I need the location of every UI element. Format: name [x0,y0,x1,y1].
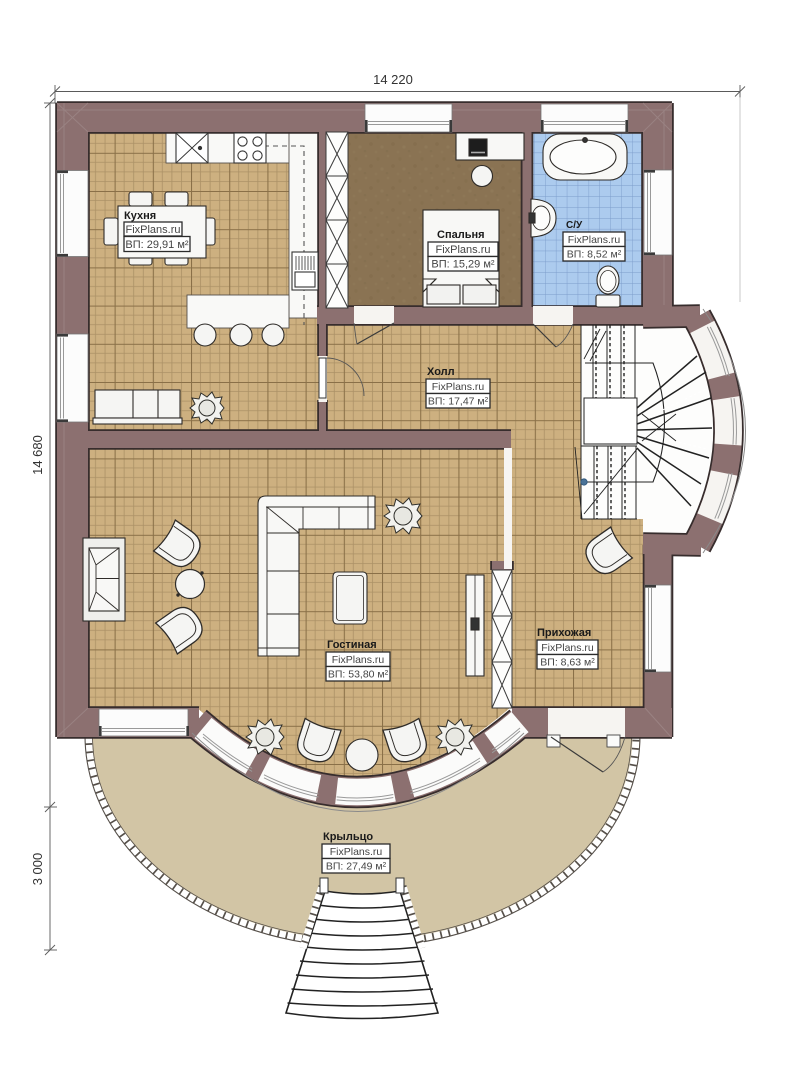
svg-text:Крыльцо: Крыльцо [323,831,373,843]
svg-text:ВП: 8,52 м²: ВП: 8,52 м² [567,249,622,261]
svg-text:Холл: Холл [427,366,455,378]
svg-text:FixPlans.ru: FixPlans.ru [330,846,383,858]
svg-text:ВП: 8,63 м²: ВП: 8,63 м² [540,657,595,669]
svg-text:FixPlans.ru: FixPlans.ru [568,234,621,246]
svg-text:Прихожая: Прихожая [537,627,591,639]
svg-text:FixPlans.ru: FixPlans.ru [541,642,594,654]
svg-text:FixPlans.ru: FixPlans.ru [435,244,490,256]
svg-text:Спальня: Спальня [437,229,485,241]
svg-text:ВП: 27,49 м²: ВП: 27,49 м² [326,861,387,873]
svg-text:FixPlans.ru: FixPlans.ru [125,224,180,236]
svg-text:14 680: 14 680 [30,435,45,475]
svg-text:ВП: 17,47 м²: ВП: 17,47 м² [428,396,489,408]
svg-text:ВП: 15,29 м²: ВП: 15,29 м² [431,259,495,271]
svg-text:ВП: 29,91 м²: ВП: 29,91 м² [125,239,189,251]
svg-text:FixPlans.ru: FixPlans.ru [432,381,485,393]
svg-text:С/У: С/У [566,220,583,231]
svg-text:Кухня: Кухня [124,210,156,222]
svg-text:14 220: 14 220 [373,72,413,87]
svg-text:FixPlans.ru: FixPlans.ru [332,654,385,666]
svg-text:3 000: 3 000 [30,853,45,886]
svg-text:ВП: 53,80 м²: ВП: 53,80 м² [328,669,389,681]
svg-text:Гостиная: Гостиная [327,639,377,651]
